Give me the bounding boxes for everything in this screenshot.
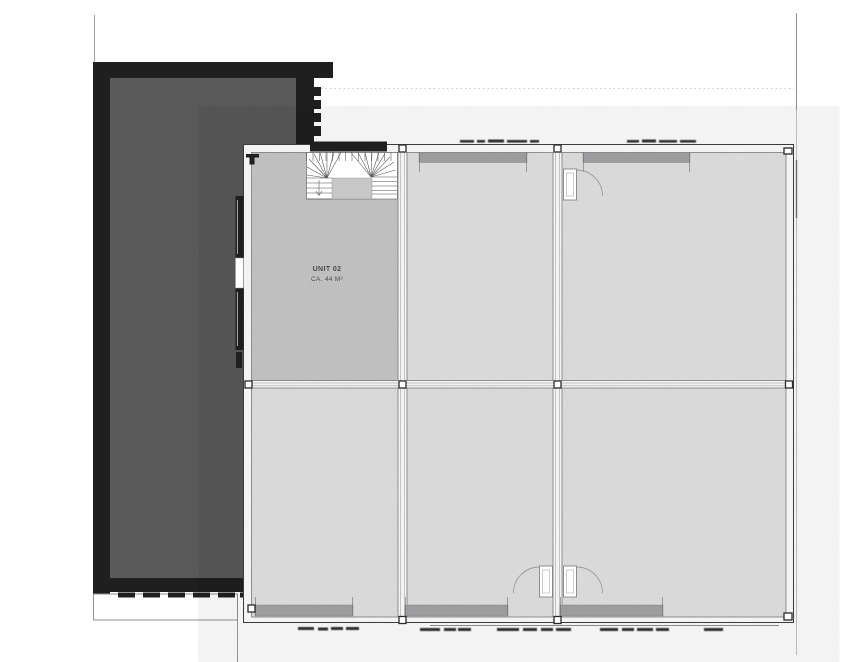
unit-label: UNIT 02	[281, 265, 373, 275]
floor-plan-canvas: UNIT 02 CA. 44 M²	[0, 0, 862, 662]
floor-texture	[252, 153, 787, 618]
unit-area: CA. 44 M²	[281, 275, 373, 285]
floor-plan-drawing	[0, 0, 862, 662]
stair-head-wall	[310, 142, 387, 152]
staircase	[307, 142, 398, 200]
facade-window-segments	[236, 196, 244, 368]
unit-label-box: UNIT 02 CA. 44 M²	[281, 265, 373, 285]
